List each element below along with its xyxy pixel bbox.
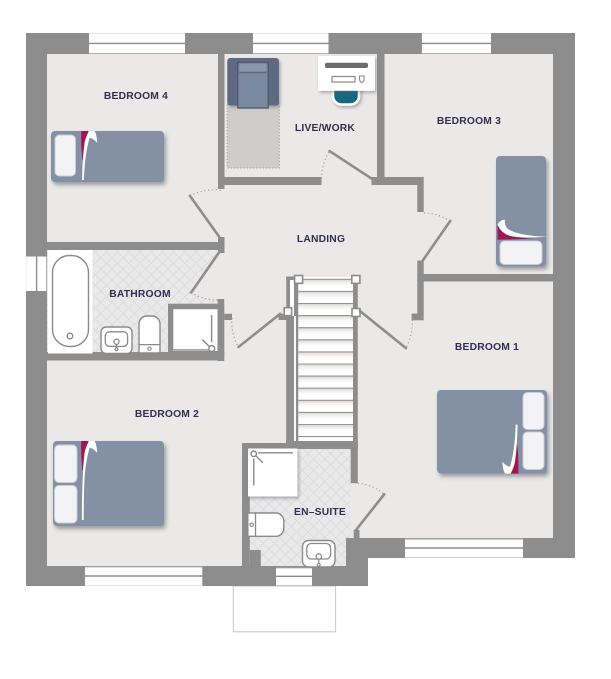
svg-text:BEDROOM 1: BEDROOM 1 bbox=[455, 342, 519, 353]
svg-text:LANDING: LANDING bbox=[297, 234, 345, 245]
svg-text:BEDROOM 4: BEDROOM 4 bbox=[104, 91, 168, 102]
svg-text:LIVE/WORK: LIVE/WORK bbox=[295, 123, 356, 134]
svg-text:BEDROOM 3: BEDROOM 3 bbox=[437, 116, 501, 127]
svg-text:BEDROOM 2: BEDROOM 2 bbox=[135, 409, 199, 420]
svg-text:EN–SUITE: EN–SUITE bbox=[294, 507, 346, 518]
svg-text:BATHROOM: BATHROOM bbox=[109, 289, 170, 300]
